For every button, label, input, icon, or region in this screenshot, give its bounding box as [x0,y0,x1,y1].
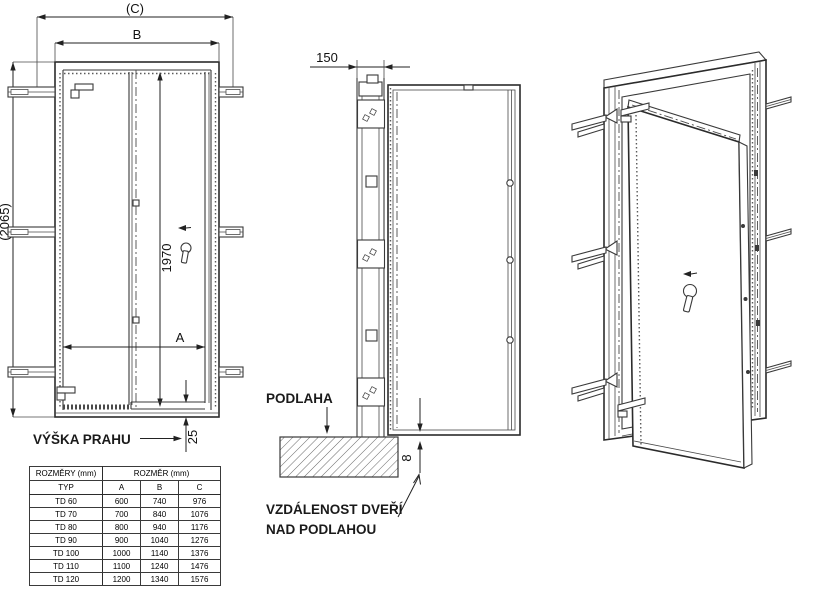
anchor-box [358,378,385,406]
cell-c: 1376 [179,547,221,560]
table-row: TD 70 700 840 1076 [30,508,221,521]
table-column-header-row: TYP A B C [30,481,221,495]
wall-anchor [8,227,55,237]
dim-overall-height: (2065) [0,62,57,417]
table-row: TD 60 600 740 976 [30,495,221,508]
table-row: TD 80 800 940 1176 [30,521,221,534]
floor [280,437,398,477]
cell-b: 940 [141,521,179,534]
dim-frame-width: B [55,27,219,61]
cell-b: 840 [141,508,179,521]
door-leaf-3d [628,100,752,468]
cell-a: 1000 [103,547,141,560]
table-row: TD 100 1000 1140 1376 [30,547,221,560]
threshold-label: VÝŠKA PRAHU [33,432,131,447]
anchor-box [358,240,385,268]
floor-label: PODLAHA [266,391,333,406]
frame-profile [357,75,385,437]
header-rozmer: ROZMĚR (mm) [103,467,221,481]
wall-anchor [766,361,791,373]
table-group-header-row: ROZMĚRY (mm) ROZMĚR (mm) [30,467,221,481]
cell-a: 700 [103,508,141,521]
wall-anchor [219,87,243,97]
column-header-a: A [103,481,141,495]
dim-label-150: 150 [316,50,338,65]
table-row: TD 120 1200 1340 1576 [30,573,221,586]
wall-anchor [766,229,791,241]
cell-typ: TD 80 [30,521,103,534]
wall-anchors-3d-right [766,97,791,373]
wall-anchors-left [8,87,55,377]
cell-b: 1240 [141,560,179,573]
dim-label-b: B [133,27,142,42]
wall-anchor [219,227,243,237]
cell-a: 1200 [103,573,141,586]
dim-label-25: 25 [185,430,200,444]
cell-typ: TD 110 [30,560,103,573]
cell-c: 1076 [179,508,221,521]
cell-c: 1176 [179,521,221,534]
cell-c: 1576 [179,573,221,586]
cell-b: 740 [141,495,179,508]
cell-a: 800 [103,521,141,534]
cell-c: 976 [179,495,221,508]
cell-b: 1140 [141,547,179,560]
column-header-c: C [179,481,221,495]
anchor-box [358,100,385,128]
dim-label-1970: 1970 [159,244,174,273]
column-header-b: B [141,481,179,495]
wall-anchor [8,87,55,97]
cell-a: 900 [103,534,141,547]
cell-typ: TD 60 [30,495,103,508]
door-technical-drawing: (C) B (2065) [0,0,828,604]
table-row: TD 90 900 1040 1276 [30,534,221,547]
wall-anchor [766,97,791,109]
gap-callout: VZDÁLENOST DVEŘÍ NAD PODLAHOU [266,475,421,538]
dimensions-table: ROZMĚRY (mm) ROZMĚR (mm) TYP A B C TD 60… [29,466,221,586]
threshold-callout: VÝŠKA PRAHU [33,432,182,447]
cell-b: 1340 [141,573,179,586]
cell-c: 1276 [179,534,221,547]
cell-typ: TD 70 [30,508,103,521]
header-rozmery: ROZMĚRY (mm) [30,467,103,481]
cell-a: 1100 [103,560,141,573]
dim-label-a: A [176,330,185,345]
dim-label-c: (C) [126,1,144,16]
cell-typ: TD 90 [30,534,103,547]
wall-anchors-right [219,87,243,377]
cell-c: 1476 [179,560,221,573]
floor-callout: PODLAHA [266,391,333,434]
door-frame-outline [55,62,219,417]
wall-anchor [219,367,243,377]
gap-label-line1: VZDÁLENOST DVEŘÍ [266,502,404,517]
door-leaf-side [388,85,520,435]
side-view: 150 [266,50,520,537]
cell-typ: TD 100 [30,547,103,560]
front-view: (C) B (2065) [0,1,243,452]
perspective-view [572,52,791,468]
column-header-typ: TYP [30,481,103,495]
table-row: TD 110 1100 1240 1476 [30,560,221,573]
cell-typ: TD 120 [30,573,103,586]
dim-frame-depth: 150 [310,50,410,82]
wall-anchor [8,367,55,377]
dim-label-8: 8 [399,454,414,461]
cell-a: 600 [103,495,141,508]
cell-b: 1040 [141,534,179,547]
gap-label-line2: NAD PODLAHOU [266,522,376,537]
